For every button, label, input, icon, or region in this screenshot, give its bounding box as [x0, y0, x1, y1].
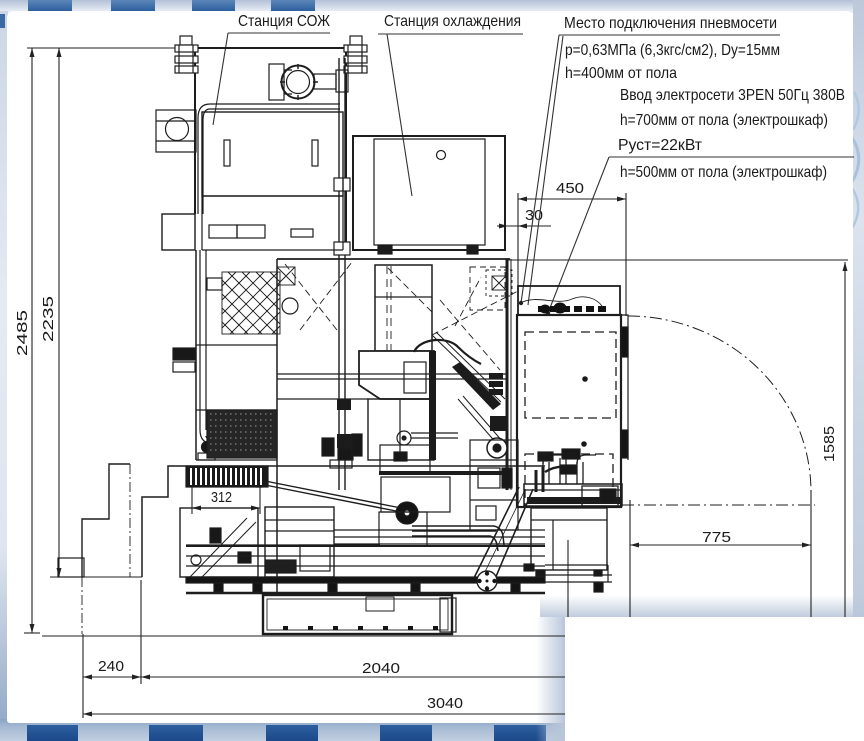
svg-text:p=0,63МПа (6,3кгс/см2), Dy=15м: p=0,63МПа (6,3кгс/см2), Dy=15мм	[565, 42, 780, 59]
svg-text:1585: 1585	[821, 426, 838, 462]
svg-text:775: 775	[702, 529, 731, 546]
svg-text:240: 240	[98, 658, 124, 675]
svg-text:h=400мм от пола: h=400мм от пола	[565, 65, 677, 82]
svg-text:3040: 3040	[427, 695, 463, 712]
svg-text:312: 312	[211, 489, 232, 506]
svg-text:Место подключения пневмосети: Место подключения пневмосети	[564, 15, 777, 32]
svg-text:2485: 2485	[14, 310, 31, 356]
svg-text:450: 450	[556, 180, 584, 197]
svg-text:2040: 2040	[362, 660, 400, 677]
svg-text:h=500мм от пола (электрошкаф): h=500мм от пола (электрошкаф)	[620, 164, 827, 181]
svg-text:2235: 2235	[40, 296, 57, 342]
svg-text:h=700мм от пола (электрошкаф): h=700мм от пола (электрошкаф)	[620, 112, 828, 129]
svg-text:Ввод электросети 3PEN 50Гц 380: Ввод электросети 3PEN 50Гц 380В	[620, 87, 845, 104]
svg-text:Станция охлаждения: Станция охлаждения	[384, 13, 521, 30]
svg-text:Руст=22кВт: Руст=22кВт	[618, 137, 703, 154]
svg-text:Станция СОЖ: Станция СОЖ	[238, 13, 330, 30]
